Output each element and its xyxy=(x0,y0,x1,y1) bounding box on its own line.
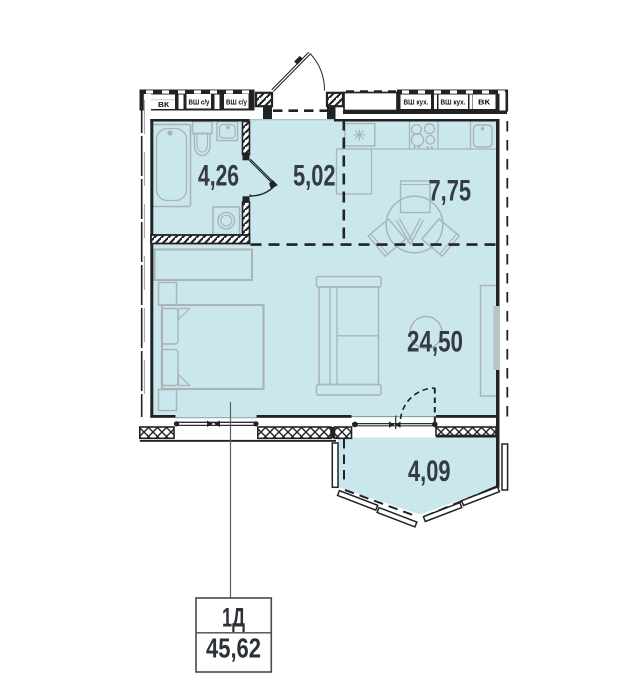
svg-text:ВШ кух.: ВШ кух. xyxy=(441,98,466,107)
svg-text:7,75: 7,75 xyxy=(429,175,472,208)
svg-text:24,50: 24,50 xyxy=(407,326,463,359)
svg-text:ВШ с/у: ВШ с/у xyxy=(189,98,211,107)
svg-text:ВШ с/у: ВШ с/у xyxy=(226,98,248,107)
svg-text:ВК: ВК xyxy=(478,98,490,107)
svg-text:4,09: 4,09 xyxy=(408,455,451,488)
svg-text:45,62: 45,62 xyxy=(206,633,261,664)
svg-text:1Д: 1Д xyxy=(222,603,245,633)
svg-text:4,26: 4,26 xyxy=(198,160,239,193)
svg-text:ВК: ВК xyxy=(158,100,169,109)
svg-text:ВШ кух.: ВШ кух. xyxy=(404,98,429,107)
svg-text:5,02: 5,02 xyxy=(293,160,336,193)
